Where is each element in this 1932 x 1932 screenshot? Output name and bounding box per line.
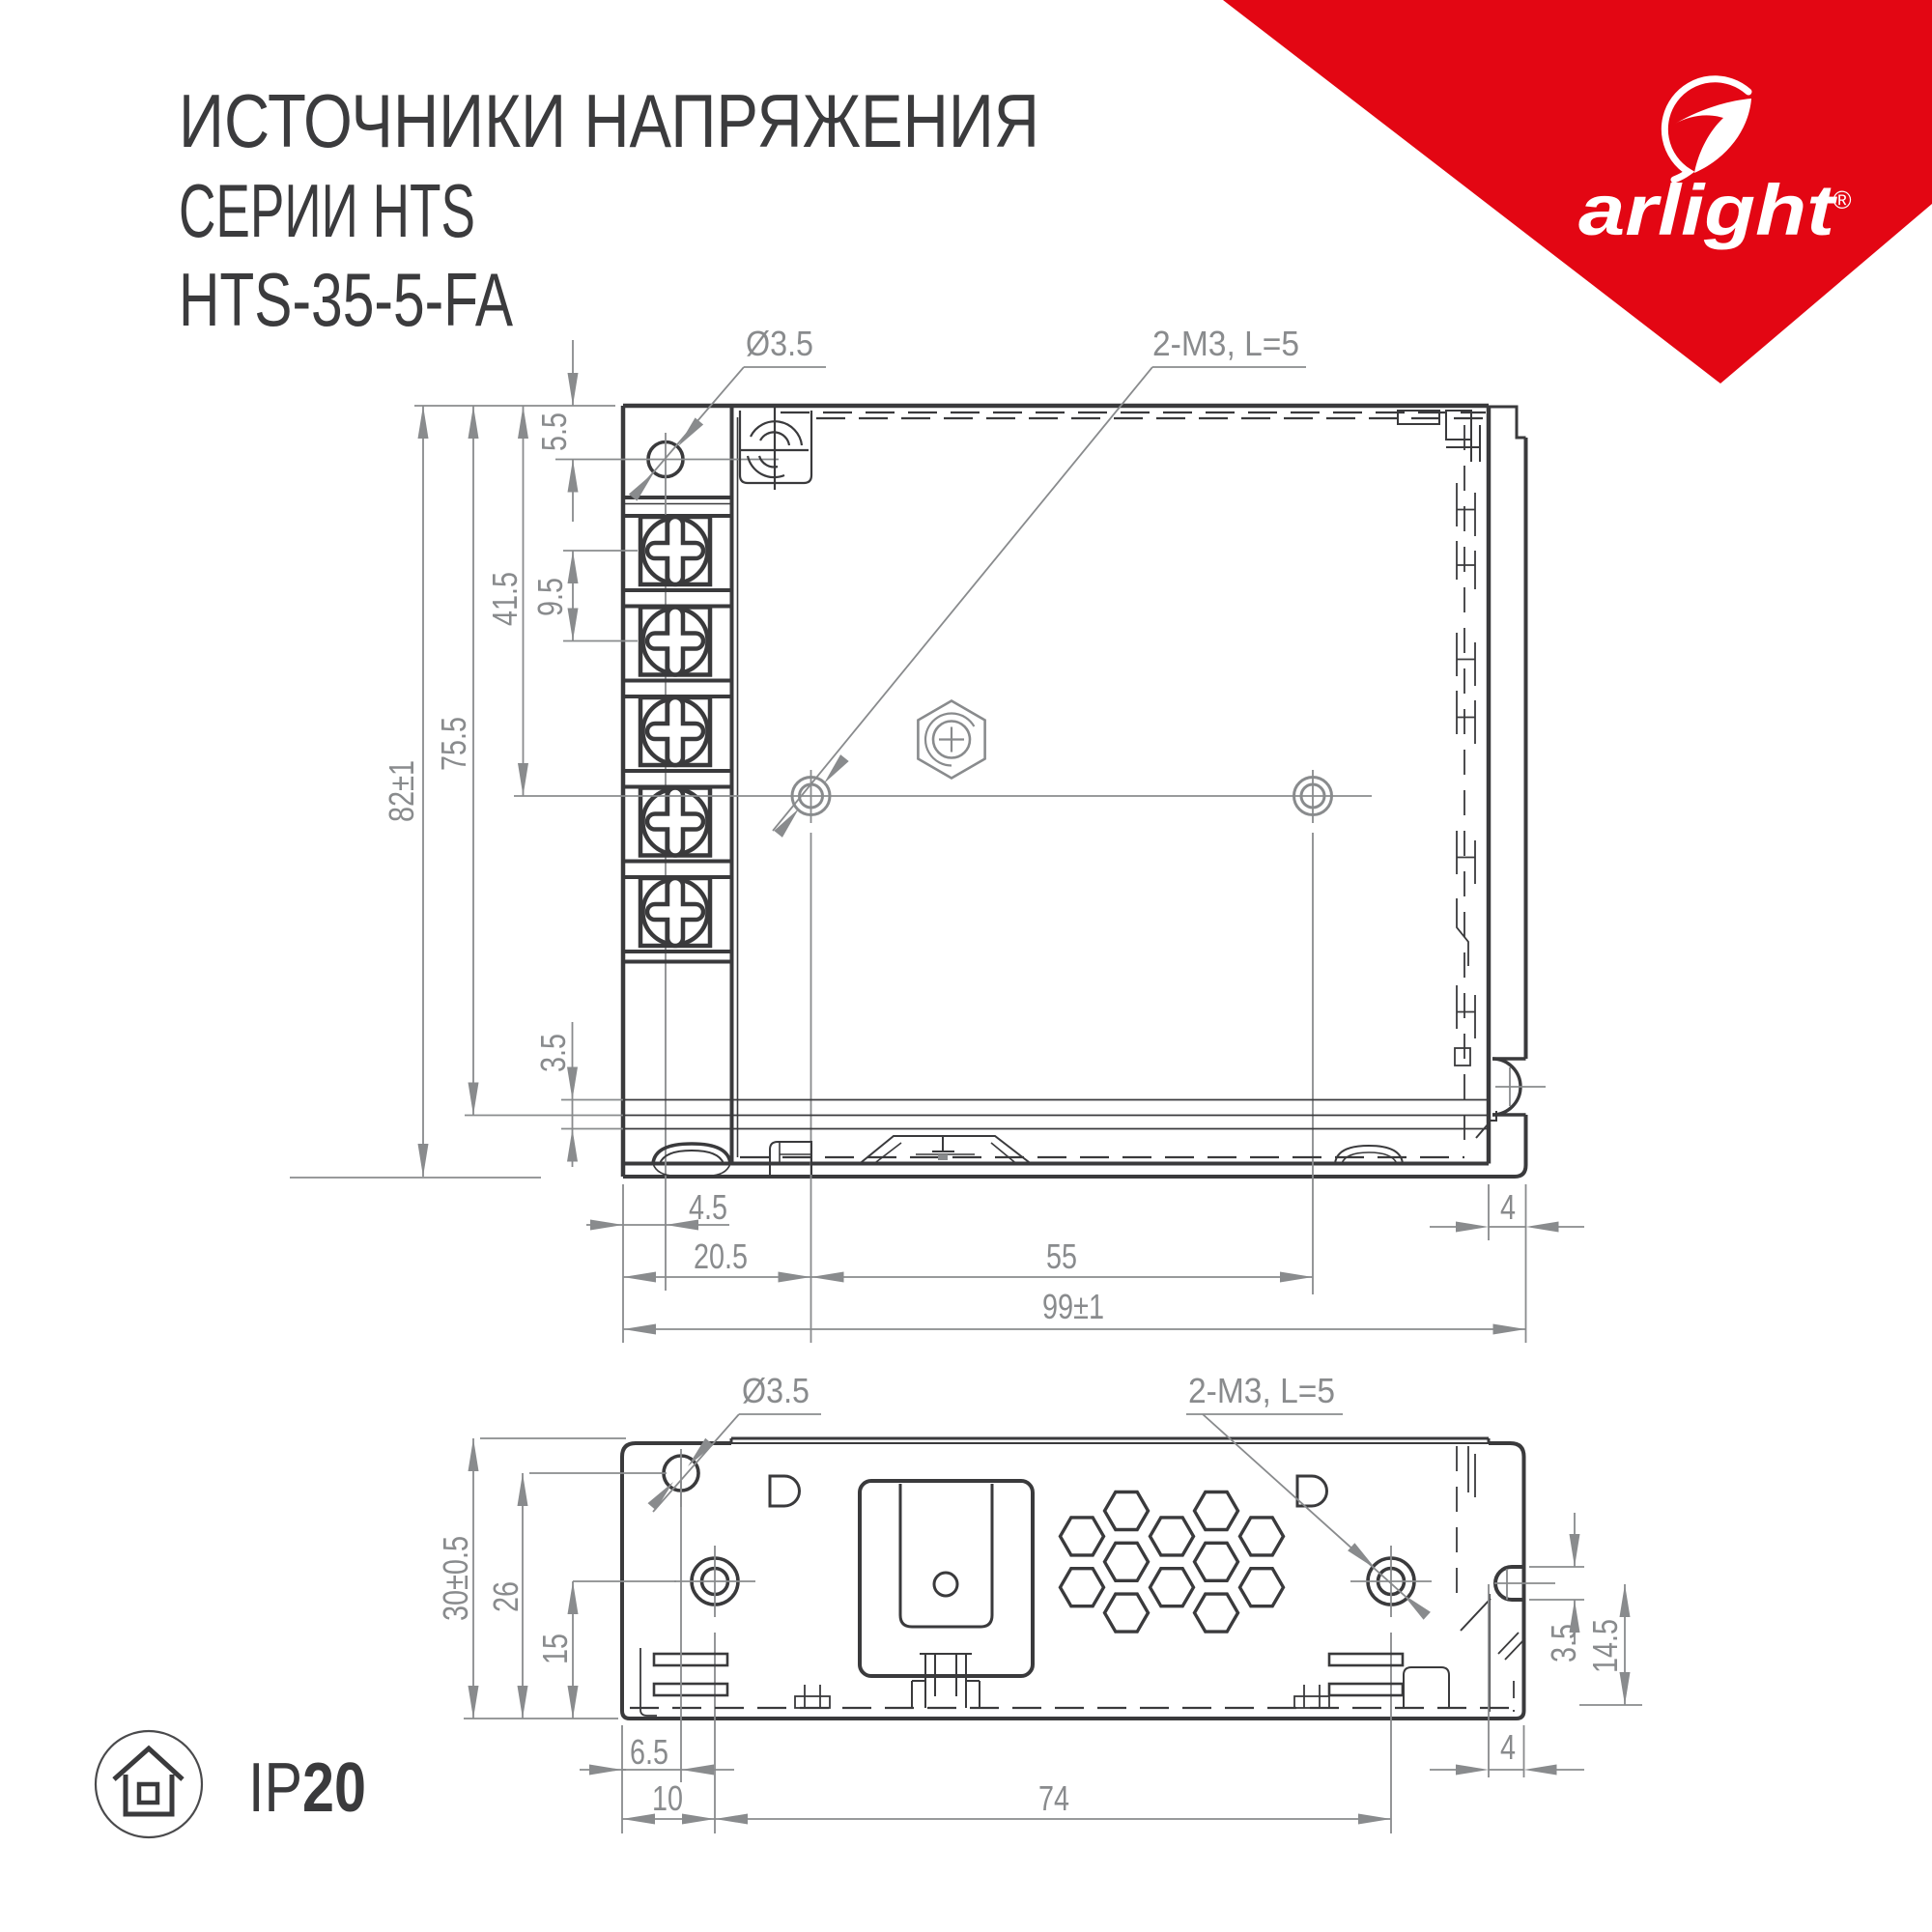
svg-text:3.5: 3.5: [1544, 1624, 1583, 1662]
svg-text:arlight: arlight: [1578, 170, 1838, 250]
svg-text:5.5: 5.5: [534, 412, 574, 451]
svg-text:СЕРИИ HTS: СЕРИИ HTS: [179, 168, 475, 253]
svg-text:HTS-35-5-FA: HTS-35-5-FA: [179, 257, 513, 342]
svg-text:20.5: 20.5: [694, 1236, 748, 1276]
svg-text:75.5: 75.5: [434, 717, 473, 771]
svg-text:Ø3.5: Ø3.5: [746, 324, 813, 363]
svg-text:2-M3, L=5: 2-M3, L=5: [1152, 324, 1299, 363]
svg-text:IP20: IP20: [248, 1749, 366, 1827]
svg-text:82±1: 82±1: [382, 760, 421, 822]
svg-text:26: 26: [486, 1581, 526, 1612]
svg-text:Ø3.5: Ø3.5: [742, 1371, 810, 1410]
svg-text:41.5: 41.5: [485, 572, 525, 626]
svg-text:4: 4: [1500, 1727, 1516, 1767]
svg-text:2-M3, L=5: 2-M3, L=5: [1188, 1371, 1335, 1410]
svg-text:4: 4: [1500, 1187, 1516, 1227]
svg-text:9.5: 9.5: [530, 578, 570, 616]
svg-text:15: 15: [535, 1634, 575, 1664]
svg-text:4.5: 4.5: [689, 1187, 727, 1227]
svg-text:74: 74: [1038, 1778, 1069, 1818]
svg-text:6.5: 6.5: [630, 1732, 668, 1772]
svg-text:®: ®: [1833, 185, 1851, 214]
svg-text:14.5: 14.5: [1585, 1619, 1625, 1673]
svg-text:99±1: 99±1: [1042, 1287, 1104, 1326]
svg-text:ИСТОЧНИКИ НАПРЯЖЕНИЯ: ИСТОЧНИКИ НАПРЯЖЕНИЯ: [179, 78, 1039, 163]
svg-text:3.5: 3.5: [533, 1034, 573, 1072]
svg-text:55: 55: [1046, 1236, 1077, 1276]
svg-text:30±0.5: 30±0.5: [436, 1536, 475, 1621]
svg-text:10: 10: [652, 1778, 683, 1818]
